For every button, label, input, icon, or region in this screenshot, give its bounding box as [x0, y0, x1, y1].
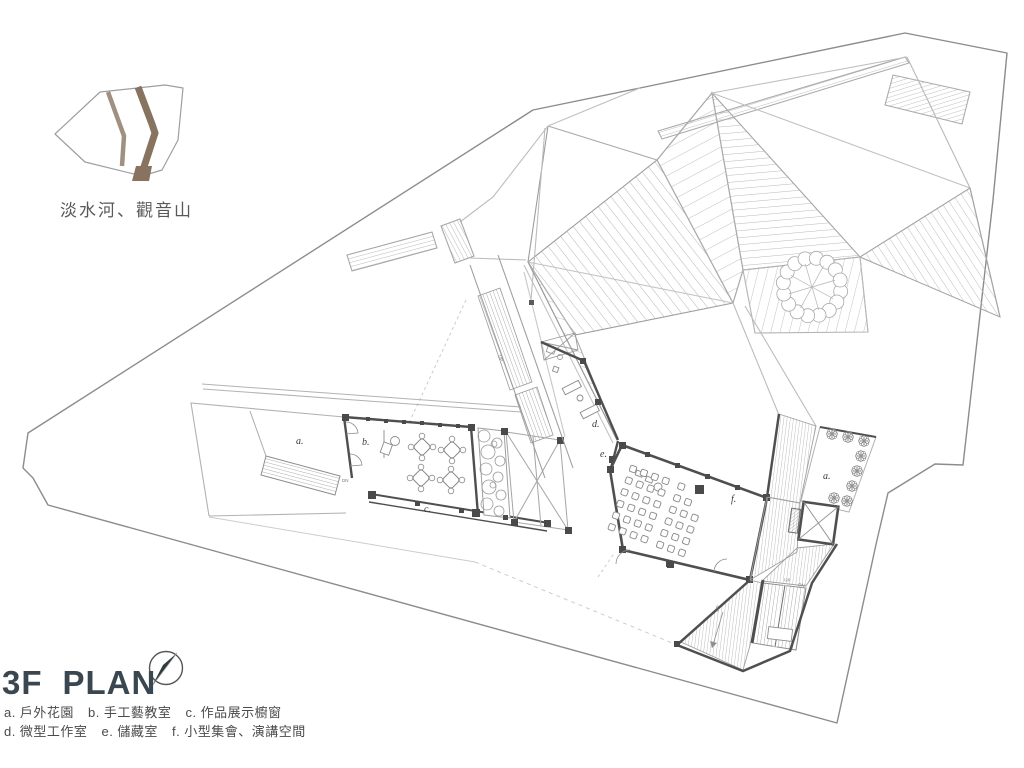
legend-item-e: e.儲藏室 [101, 724, 157, 739]
river-band-east [138, 87, 155, 170]
canopy-post [529, 300, 534, 305]
label-garden-right: a. [823, 471, 831, 482]
legend-item-b: b.手工藝教室 [88, 705, 171, 720]
label-assembly: f. [731, 494, 736, 505]
plan-drawing: DN [0, 0, 1024, 768]
columns-right [667, 561, 680, 647]
left-wing: DN [191, 384, 572, 534]
legend: a.戶外花園 b.手工藝教室 c.作品展示櫥窗 d.微型工作室 e.儲藏室 f.… [4, 703, 316, 741]
site-map-label: 淡水河、觀音山 [60, 196, 193, 221]
page-title: 3FPLAN [2, 664, 156, 702]
legend-item-a: a.戶外花園 [4, 705, 74, 720]
label-garden-left: a. [296, 436, 304, 447]
legend-row-1: a.戶外花園 b.手工藝教室 c.作品展示櫥窗 [4, 703, 316, 722]
legend-item-d: d.微型工作室 [4, 724, 87, 739]
label-display-window: c. [424, 504, 431, 515]
legend-row-2: d.微型工作室 e.儲藏室 f.小型集會、演講空間 [4, 722, 316, 741]
title-floor: 3F [2, 664, 43, 701]
legend-item-c: c.作品展示櫥窗 [185, 705, 281, 720]
corridor-stair-upper [478, 288, 532, 390]
assembly-room [607, 442, 770, 583]
easel [380, 430, 399, 458]
roof-walkway-stair-bend [441, 219, 474, 263]
garden-stair [261, 456, 340, 495]
legend-item-f: f.小型集會、演講空間 [172, 724, 306, 739]
roof-walkway-stair-west [347, 232, 437, 271]
label-micro-studio: d. [592, 419, 600, 430]
roof-canopy [347, 57, 1000, 443]
micro-studio-desks [552, 366, 599, 419]
roof-facet-east [860, 188, 1000, 317]
assembly-room-walls [610, 445, 767, 580]
stair-label-dn: DN [798, 582, 805, 588]
stair-label-dn: DN [342, 478, 349, 483]
railing-strip [202, 384, 521, 412]
site-minimap-outline [55, 85, 183, 176]
stair-label-up: UP [784, 577, 791, 583]
label-craft-room: b. [362, 437, 370, 448]
river-band-west [108, 92, 124, 166]
roof-strip-top [658, 57, 909, 139]
site-minimap [55, 85, 183, 181]
river-band-foot [132, 166, 152, 181]
title-plan: PLAN [63, 664, 157, 701]
pergola [506, 432, 568, 530]
label-storage: e. [600, 449, 607, 460]
right-stairs: UP DN [752, 577, 806, 650]
floor-plan-sheet: DN [0, 0, 1024, 768]
micro-studio-walls [541, 342, 624, 546]
craft-room-tables [407, 433, 466, 494]
